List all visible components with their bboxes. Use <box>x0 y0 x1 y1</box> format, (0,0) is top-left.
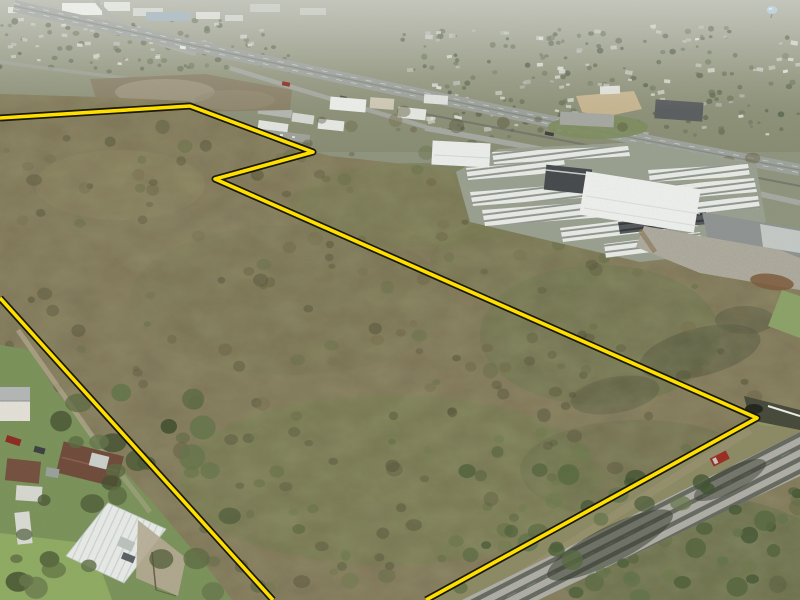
aerial-photo <box>0 0 800 600</box>
atmospheric-haze <box>0 0 800 110</box>
aerial-photo-canvas <box>0 0 800 600</box>
